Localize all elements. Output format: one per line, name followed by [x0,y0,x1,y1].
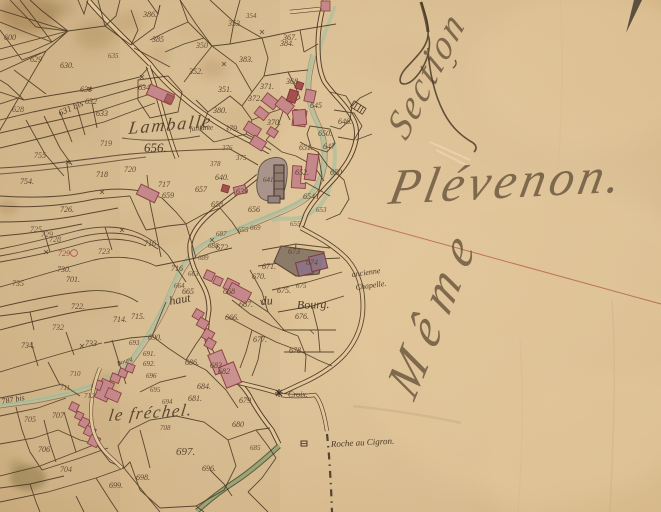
svg-text:715.: 715. [131,312,145,321]
svg-text:379.: 379. [224,124,239,133]
svg-text:673: 673 [288,247,300,256]
svg-text:685: 685 [250,444,261,452]
svg-text:726.: 726. [60,205,74,214]
svg-text:679: 679 [239,396,251,405]
svg-text:718: 718 [96,170,108,179]
svg-text:368: 368 [285,77,298,86]
svg-text:383.: 383. [238,55,253,64]
svg-text:692.: 692. [143,360,156,368]
svg-text:654: 654 [303,192,315,201]
svg-text:696.: 696. [202,464,216,473]
svg-text:716: 716 [144,239,156,248]
svg-text:641: 641 [263,176,274,184]
svg-text:635: 635 [108,52,119,60]
svg-text:701.: 701. [66,275,80,284]
svg-text:728: 728 [49,235,61,244]
svg-text:639: 639 [236,187,248,196]
svg-text:633: 633 [96,109,108,118]
svg-text:720: 720 [124,165,136,174]
svg-text:735: 735 [12,279,24,288]
svg-text:Bourg.: Bourg. [297,297,330,312]
svg-text:698.: 698. [136,473,150,482]
svg-text:656: 656 [248,205,260,214]
svg-text:687: 687 [216,230,227,238]
svg-text:678.: 678. [289,346,303,355]
svg-text:734.: 734. [21,341,35,350]
svg-text:653: 653 [316,206,327,214]
svg-text:699.: 699. [109,481,123,490]
svg-text:706: 706 [38,445,50,454]
svg-text:du: du [260,293,273,308]
svg-text:689: 689 [198,254,209,262]
svg-text:675.: 675. [277,286,291,295]
svg-text:677.: 677. [253,335,267,344]
svg-text:680: 680 [232,420,244,429]
svg-text:632: 632 [85,97,97,106]
svg-text:375: 375 [235,154,247,162]
svg-text:600: 600 [4,33,16,42]
svg-text:376: 376 [221,144,233,152]
svg-text:663: 663 [188,270,199,278]
svg-text:710: 710 [70,370,81,378]
svg-text:629: 629 [30,55,42,64]
svg-text:697.: 697. [176,446,195,458]
svg-text:755: 755 [34,151,46,160]
svg-text:690.: 690. [148,333,162,342]
svg-text:671.: 671. [262,262,276,271]
svg-text:733: 733 [85,339,97,348]
svg-text:714.: 714. [113,315,127,324]
svg-text:667.: 667. [239,300,253,309]
svg-text:655: 655 [238,226,249,234]
svg-text:651.: 651. [299,143,313,152]
svg-text:Croix.: Croix. [288,390,308,399]
svg-text:708: 708 [160,424,171,432]
svg-text:670.: 670. [252,272,266,281]
svg-text:732: 732 [52,323,64,332]
svg-text:650.: 650. [318,129,332,138]
svg-text:707: 707 [52,411,65,420]
svg-text:378: 378 [209,160,221,168]
svg-text:380.: 380. [212,106,227,115]
svg-text:646.: 646. [338,117,352,126]
svg-text:729: 729 [58,249,70,258]
svg-text:664: 664 [174,282,185,290]
svg-text:716: 716 [171,264,183,273]
svg-text:386.: 386. [142,10,157,19]
svg-text:354: 354 [245,12,257,20]
svg-text:faillante: faillante [190,123,214,133]
svg-text:712: 712 [84,392,95,400]
svg-text:693: 693 [129,339,140,347]
svg-text:675: 675 [296,282,307,290]
svg-text:351.: 351. [217,85,232,94]
svg-text:640.: 640. [215,173,229,182]
svg-text:634: 634 [138,83,150,92]
svg-text:705: 705 [24,415,36,424]
svg-text:656.: 656. [144,140,167,155]
svg-text:666.: 666. [225,313,239,322]
svg-text:385: 385 [151,35,164,44]
svg-text:657: 657 [195,185,208,194]
svg-text:682: 682 [218,367,230,376]
svg-text:717: 717 [158,180,171,189]
svg-text:367.: 367. [282,33,297,42]
svg-text:650: 650 [330,168,342,177]
svg-text:353: 353 [227,19,240,28]
svg-text:686.: 686. [185,358,199,367]
svg-text:370.: 370. [266,118,281,127]
svg-text:688: 688 [208,242,219,250]
svg-text:674: 674 [306,258,318,267]
svg-text:694: 694 [162,398,173,406]
svg-text:669: 669 [250,224,261,232]
svg-text:725: 725 [30,225,42,234]
svg-text:647: 647 [323,142,336,151]
svg-text:696: 696 [146,372,157,380]
svg-text:730.: 730. [57,265,71,274]
svg-text:652.: 652. [295,168,309,177]
svg-text:372.: 372. [247,94,262,103]
svg-text:350: 350 [195,41,208,50]
svg-text:371.: 371. [259,82,274,91]
svg-text:695: 695 [150,386,161,394]
svg-text:668: 668 [223,287,235,296]
svg-text:684.: 684. [197,382,211,391]
svg-text:659: 659 [162,191,174,200]
svg-text:630.: 630. [60,61,74,70]
svg-text:628: 628 [12,105,24,114]
svg-text:704: 704 [60,465,72,474]
svg-text:658: 658 [211,200,223,209]
svg-text:711: 711 [60,384,70,392]
svg-text:352.: 352. [188,67,203,76]
svg-text:722.: 722. [71,302,85,311]
svg-text:681.: 681. [188,394,202,403]
svg-text:719: 719 [100,139,112,148]
svg-text:631: 631 [80,85,92,94]
svg-text:645: 645 [310,101,322,110]
svg-text:723: 723 [98,247,110,256]
svg-text:754.: 754. [20,177,34,186]
svg-text:691.: 691. [143,350,156,358]
svg-text:676.: 676. [295,312,309,321]
svg-text:655: 655 [290,220,301,228]
